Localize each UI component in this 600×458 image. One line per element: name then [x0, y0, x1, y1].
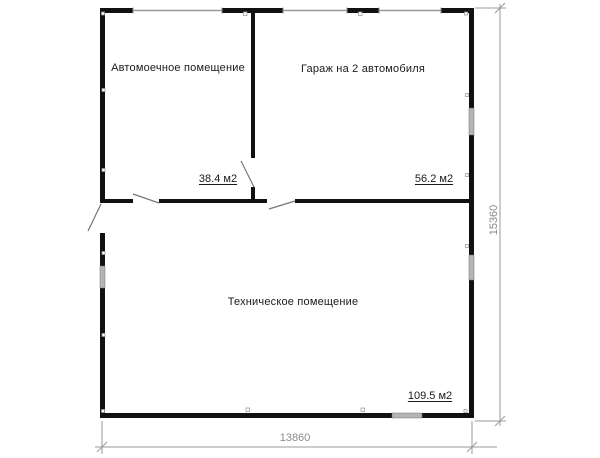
- door-swings: [88, 161, 295, 231]
- dimension-width-label: 13860: [260, 432, 330, 444]
- area-label-garage: 56.2 м2: [399, 173, 469, 185]
- area-label-carwash: 38.4 м2: [183, 173, 253, 185]
- room-label-garage: Гараж на 2 автомобиля: [283, 63, 443, 75]
- floor-plan: Автомоечное помещение Гараж на 2 автомоб…: [0, 0, 600, 458]
- dimension-height-label: 15360: [488, 199, 500, 241]
- room-label-technical: Техническое помещение: [213, 296, 373, 308]
- window-lines: [133, 8, 441, 14]
- room-label-carwash: Автомоечное помещение: [98, 62, 258, 74]
- window-blocks: [100, 108, 474, 418]
- area-label-technical: 109.5 м2: [395, 390, 465, 402]
